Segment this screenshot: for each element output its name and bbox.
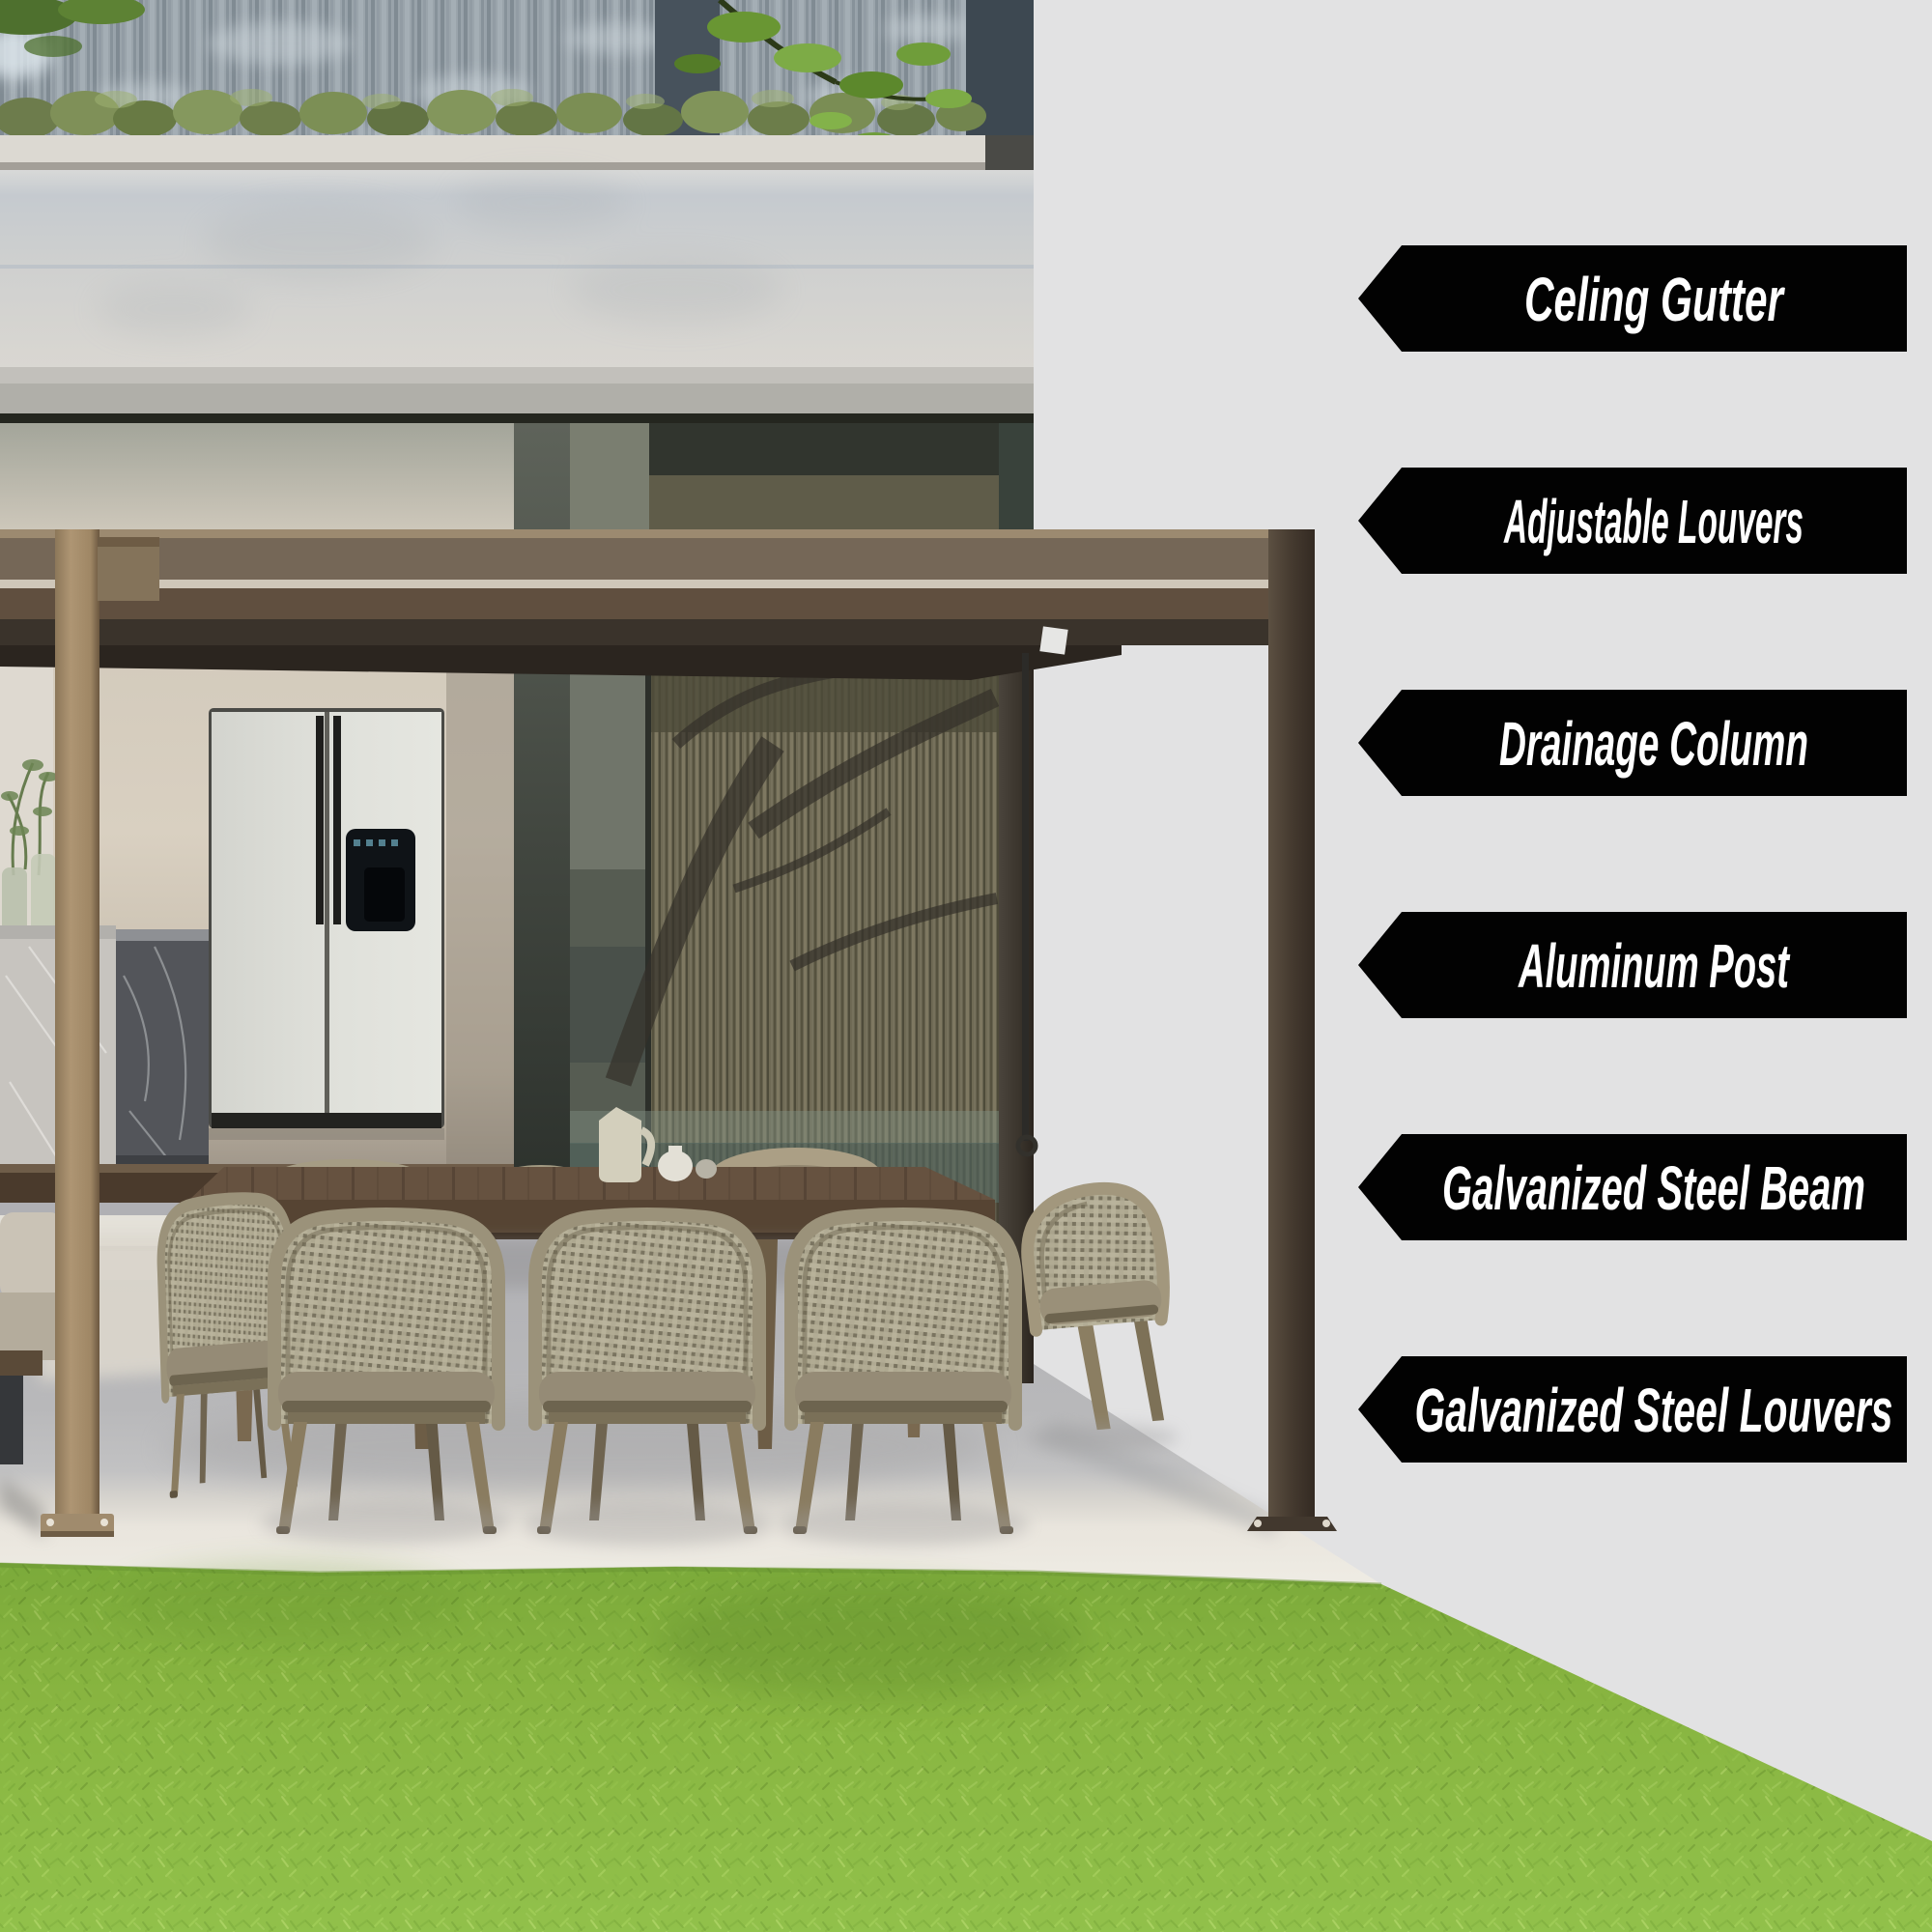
- svg-text:Aluminum Post: Aluminum Post: [1518, 931, 1791, 1001]
- svg-text:Galvanized Steel Beam: Galvanized Steel Beam: [1442, 1153, 1865, 1223]
- svg-text:Drainage Column: Drainage Column: [1499, 709, 1808, 779]
- svg-text:Celing Gutter: Celing Gutter: [1524, 265, 1785, 334]
- svg-text:Adjustable Louvers: Adjustable Louvers: [1503, 487, 1804, 556]
- svg-text:Galvanized Steel Louvers: Galvanized Steel Louvers: [1415, 1376, 1893, 1445]
